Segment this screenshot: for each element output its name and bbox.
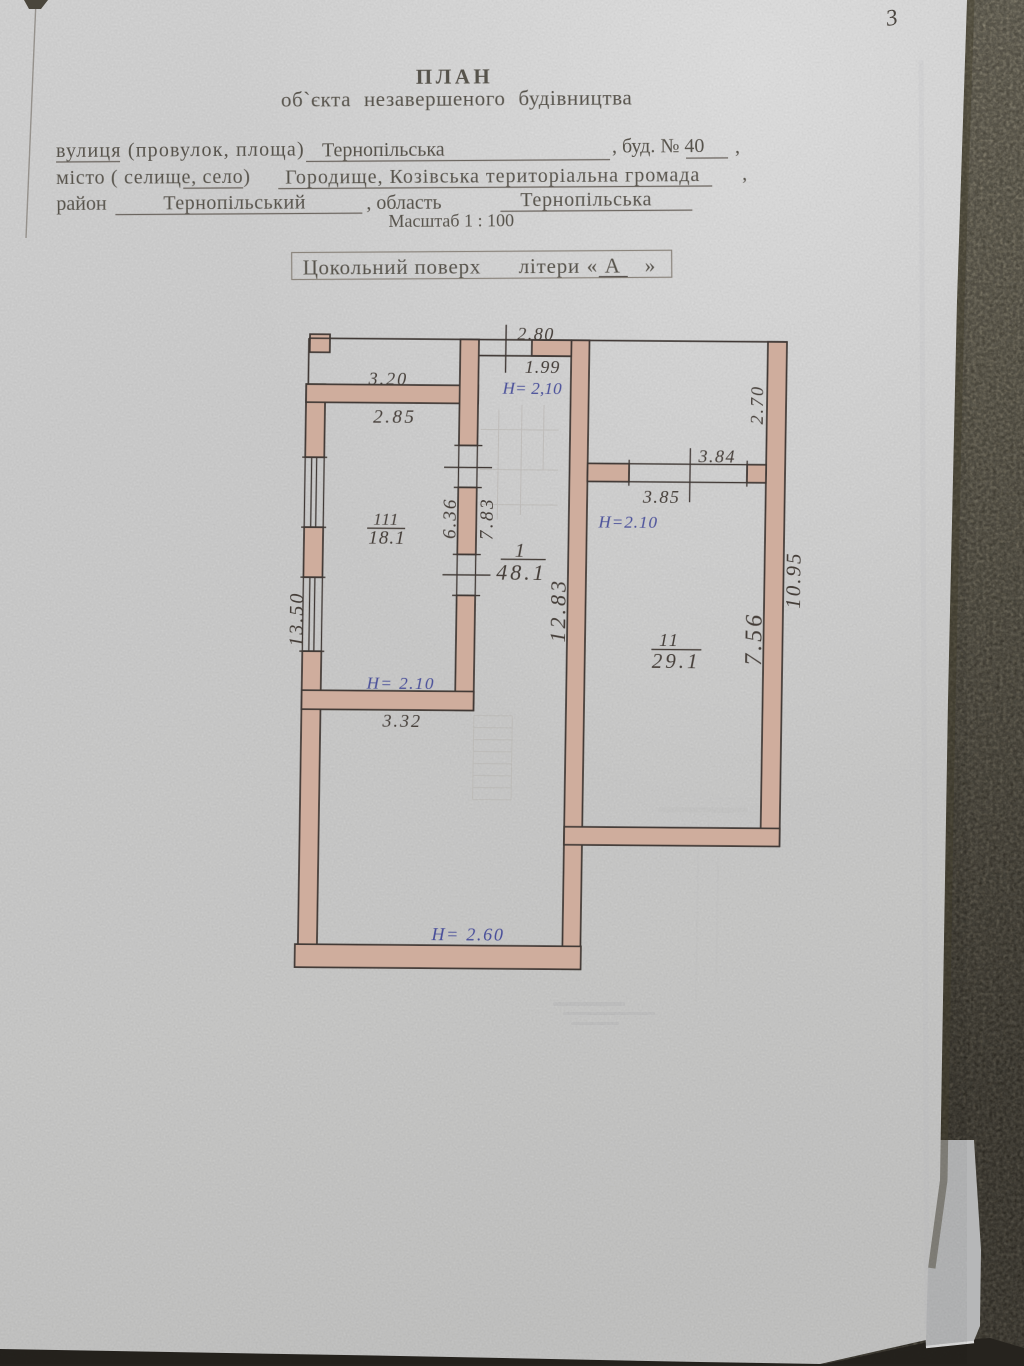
svg-text:,: , <box>735 136 740 158</box>
svg-text:6.36: 6.36 <box>440 498 462 539</box>
svg-text:вулиця (провулок, площа): вулиця (провулок, площа) <box>56 138 305 162</box>
svg-text:Городище, Козівська територіал: Городище, Козівська територіальна громад… <box>285 164 700 189</box>
svg-text:3.20: 3.20 <box>367 369 408 389</box>
svg-text:»: » <box>645 253 656 277</box>
svg-text:H= 2.60: H= 2.60 <box>430 924 504 945</box>
svg-text:2.70: 2.70 <box>747 385 768 425</box>
svg-text:Тернопільський: Тернопільський <box>163 191 306 214</box>
svg-text:11: 11 <box>659 630 680 650</box>
svg-text:12.83: 12.83 <box>545 578 571 643</box>
svg-text:3.85: 3.85 <box>642 487 681 507</box>
svg-text:,: , <box>742 163 747 185</box>
svg-text:Тернопільська: Тернопільська <box>520 188 652 211</box>
svg-text:18.1: 18.1 <box>368 528 406 549</box>
svg-text:А: А <box>605 254 621 278</box>
svg-text:3.84: 3.84 <box>697 446 736 466</box>
svg-text:7.83: 7.83 <box>476 497 498 540</box>
svg-text:1: 1 <box>515 540 525 562</box>
svg-text:10.95: 10.95 <box>781 551 806 608</box>
svg-text:13.50: 13.50 <box>285 591 308 646</box>
svg-text:3.32: 3.32 <box>381 711 422 731</box>
svg-text:2.85: 2.85 <box>373 407 417 428</box>
svg-text:«: « <box>587 254 598 278</box>
svg-text:48.1: 48.1 <box>496 560 547 585</box>
svg-text:, буд. № 40: , буд. № 40 <box>612 135 705 158</box>
svg-text:район: район <box>56 193 107 215</box>
svg-text:H= 2.10: H= 2.10 <box>366 674 436 694</box>
svg-text:29.1: 29.1 <box>652 649 701 673</box>
svg-text:H= 2,10: H= 2,10 <box>502 379 563 398</box>
svg-text:1.99: 1.99 <box>525 357 561 377</box>
svg-text:H=2.10: H=2.10 <box>597 512 658 531</box>
svg-text:111: 111 <box>373 510 399 529</box>
svg-text:2.80: 2.80 <box>517 324 555 344</box>
svg-text:7.56: 7.56 <box>741 612 768 666</box>
svg-text:Масштаб 1 : 100: Масштаб 1 : 100 <box>388 210 514 231</box>
svg-text:Цокольний поверх: Цокольний поверх <box>303 254 482 279</box>
svg-text:Тернопільська: Тернопільська <box>322 139 445 162</box>
svg-text:об`єкта незавершеного будівн: об`єкта незавершеного будівництва <box>281 85 633 111</box>
svg-text:ПЛАН: ПЛАН <box>416 64 494 88</box>
svg-text:літери: літери <box>519 254 581 278</box>
svg-text:місто ( селище, село): місто ( селище, село) <box>56 166 251 189</box>
